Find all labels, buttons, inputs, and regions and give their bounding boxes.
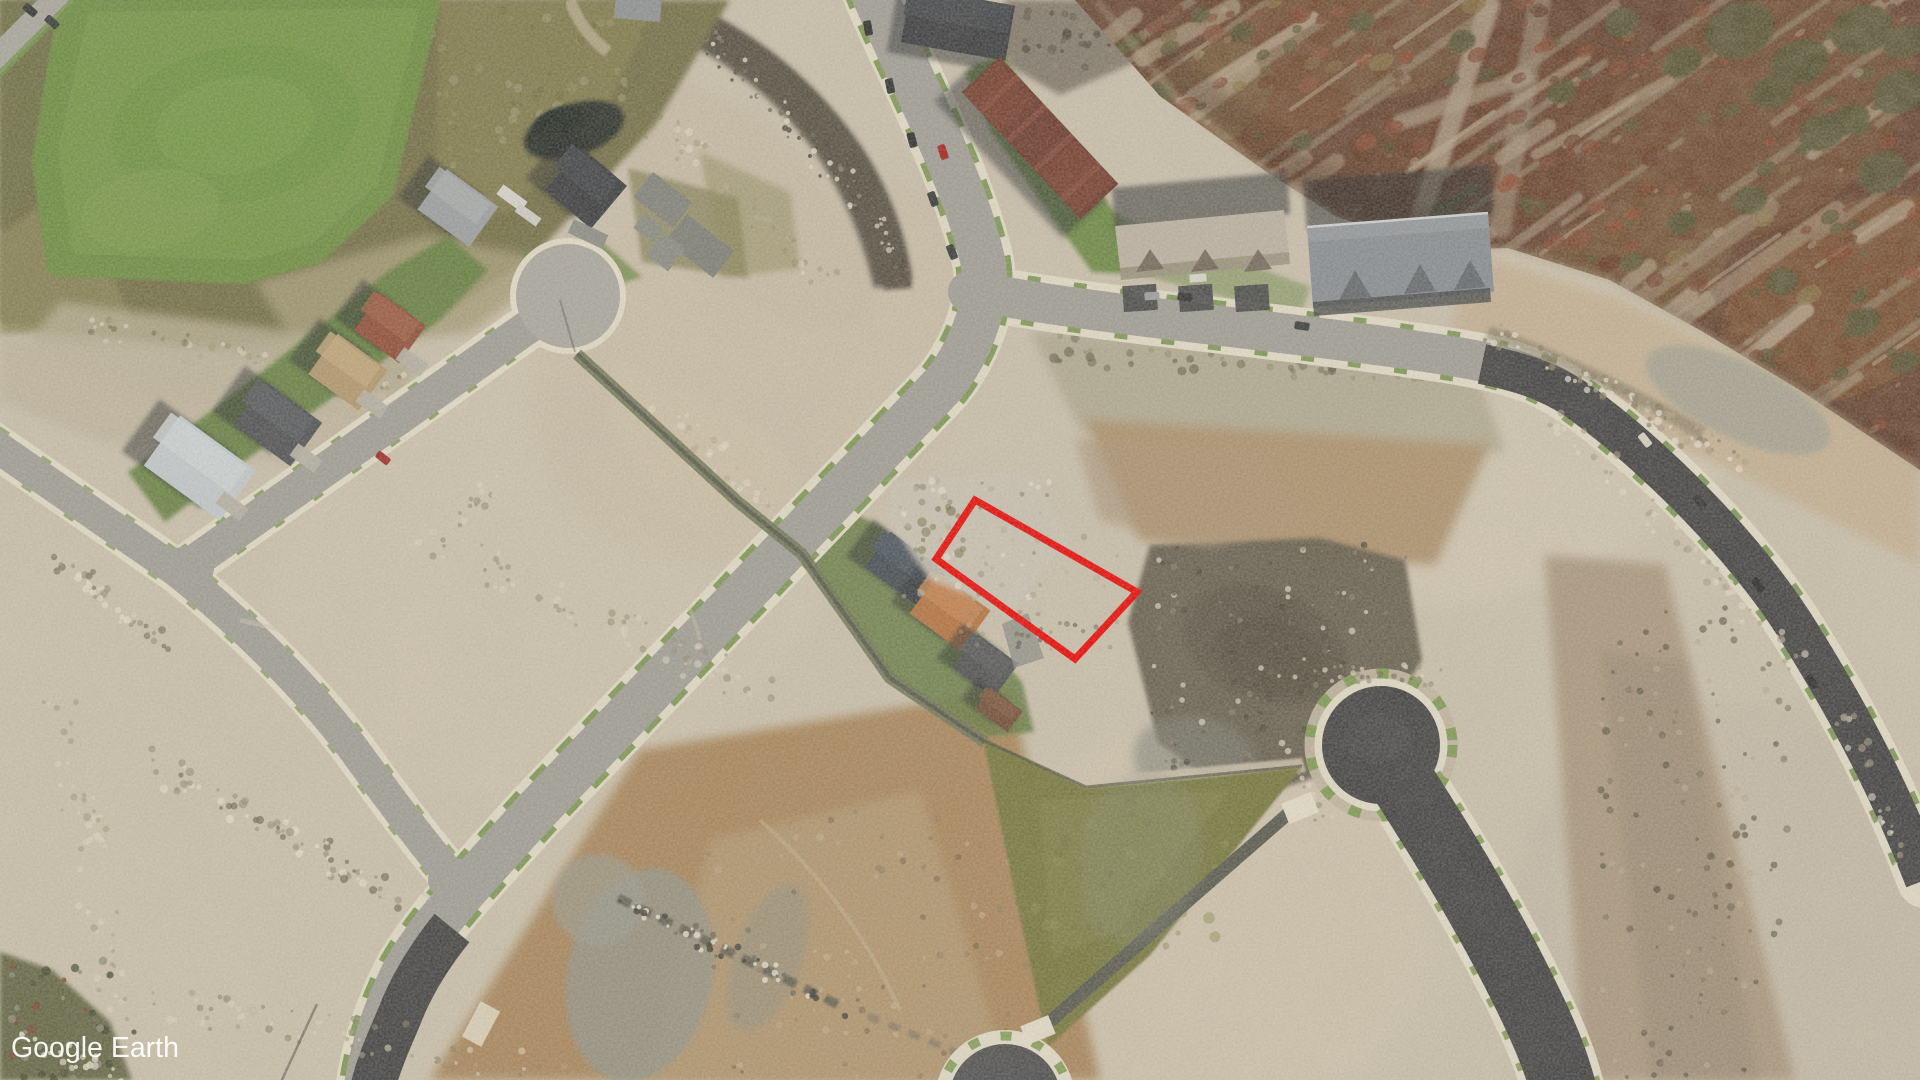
svg-text:Google Earth: Google Earth — [11, 1032, 179, 1064]
